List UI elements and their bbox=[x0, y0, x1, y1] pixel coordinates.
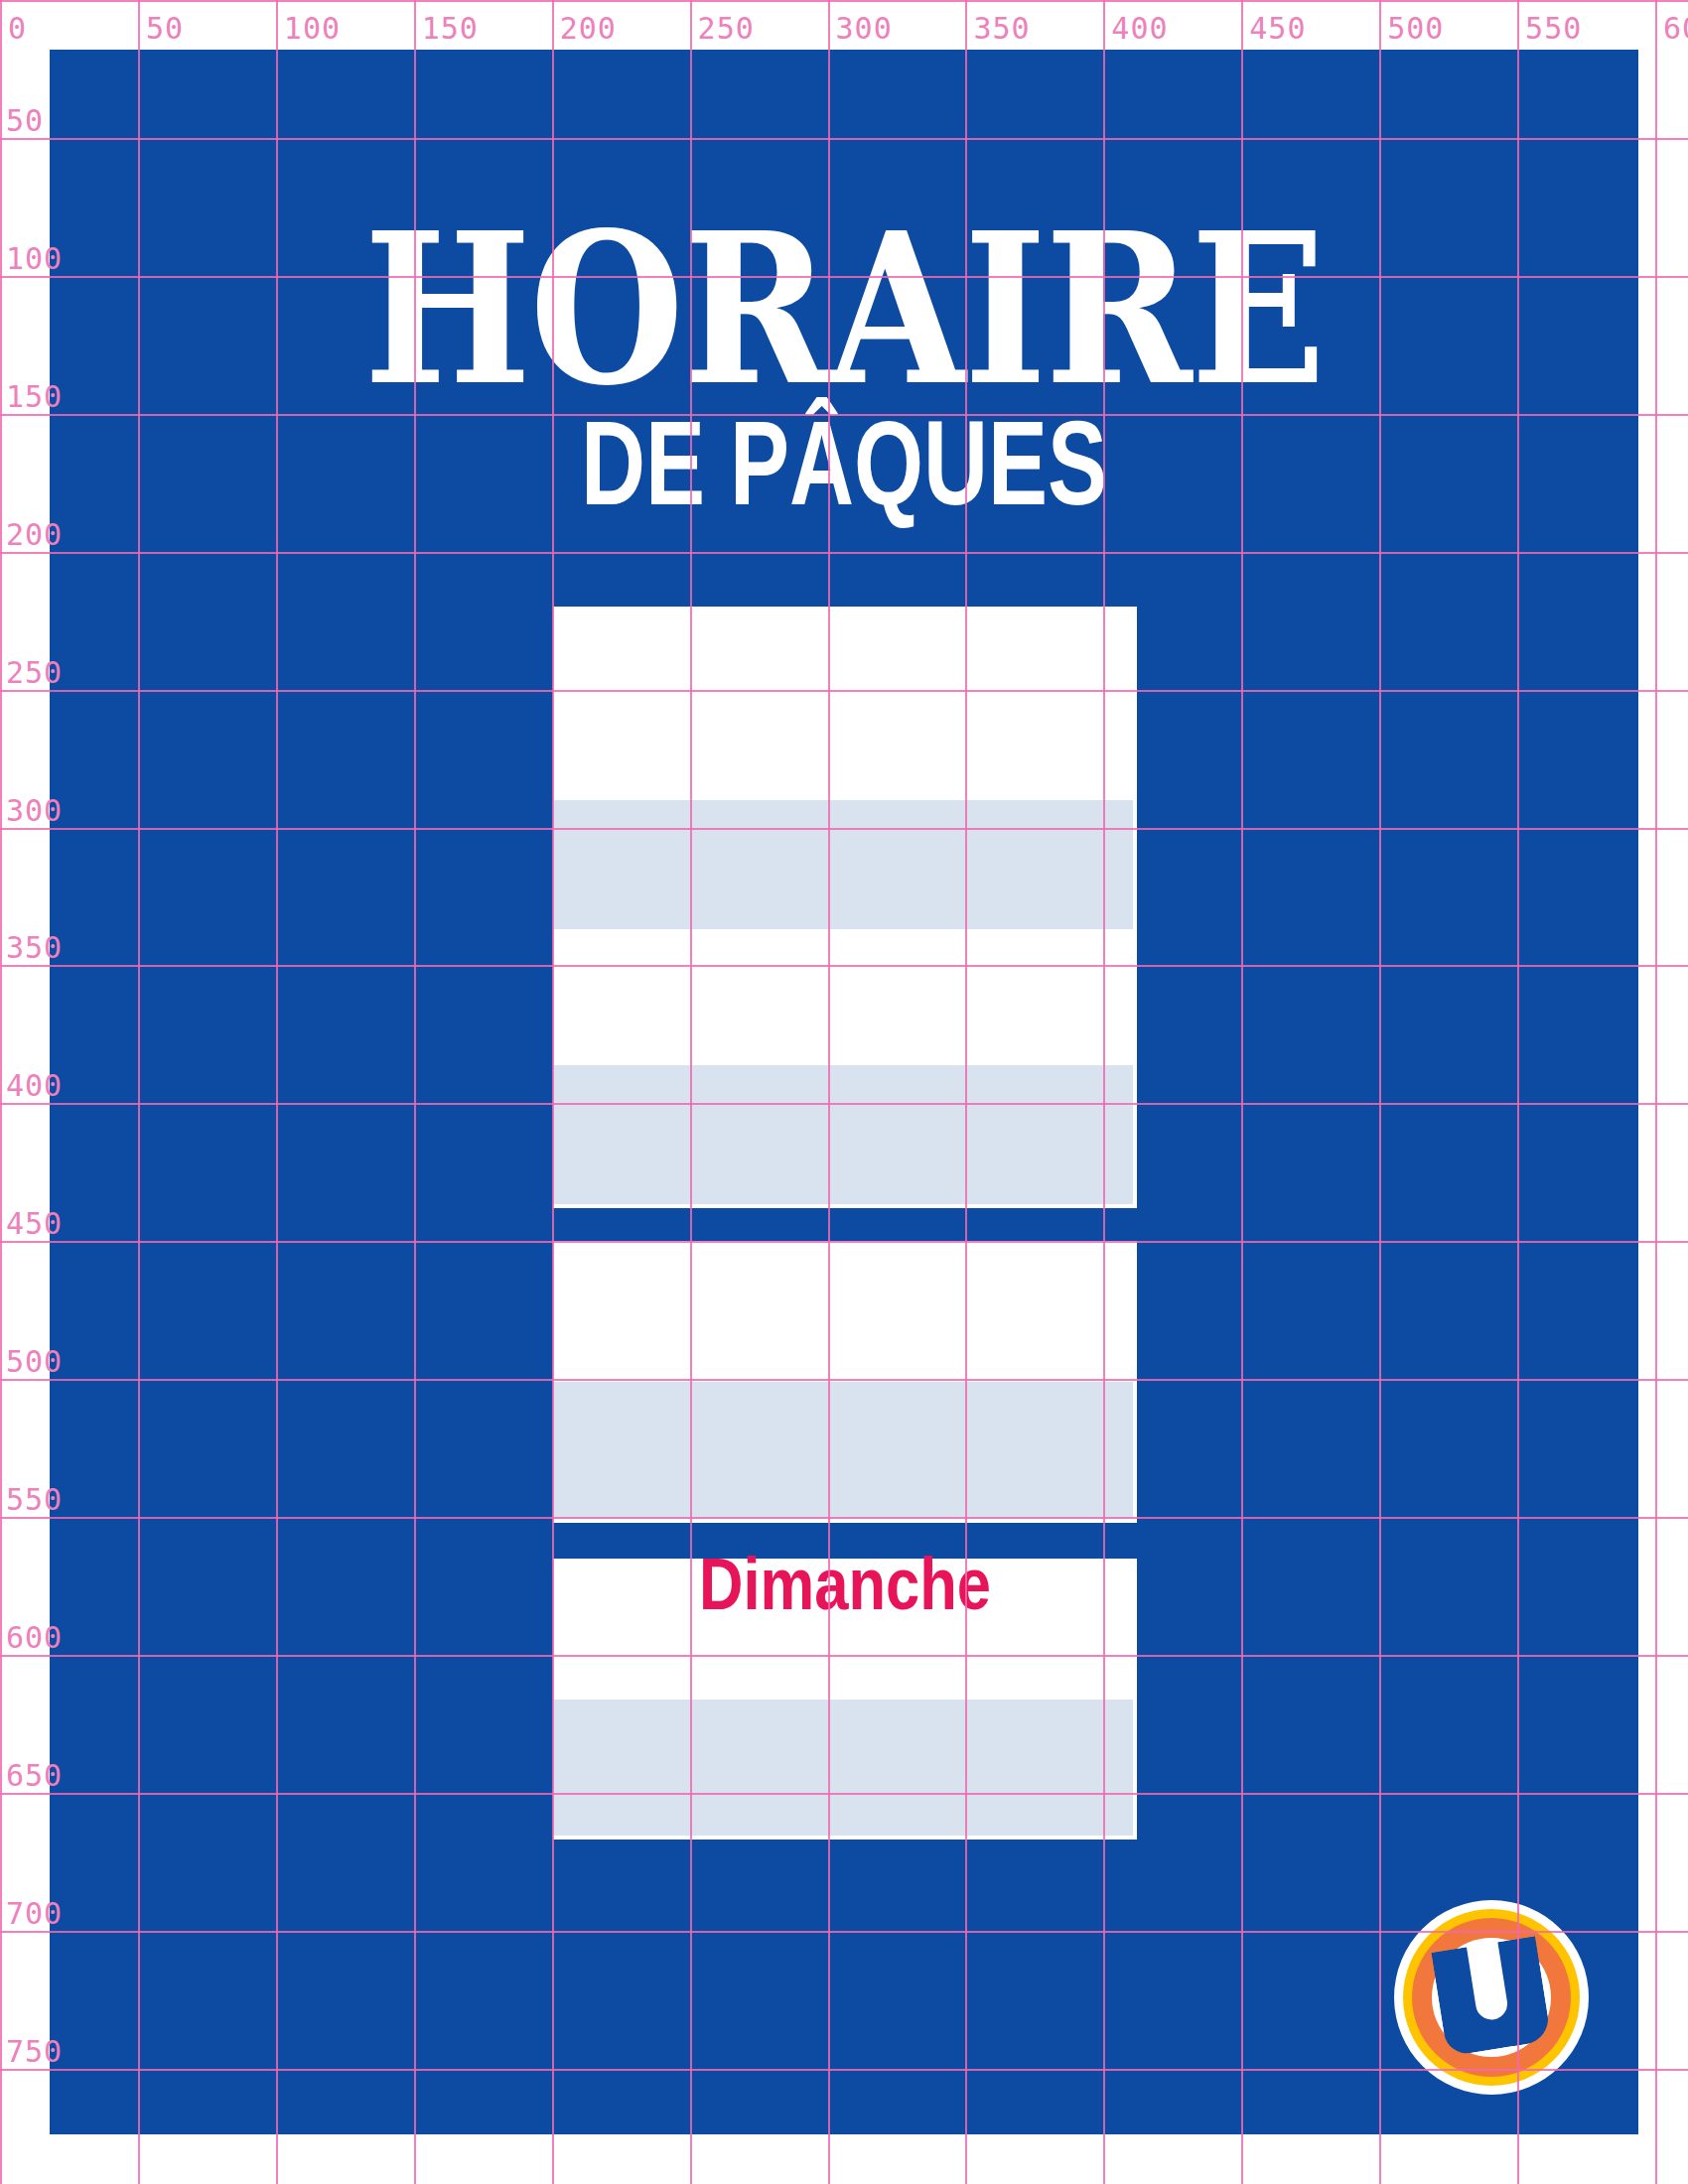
ruler-label-top-50: 50 bbox=[146, 14, 184, 44]
ruler-label-top-550: 550 bbox=[1525, 14, 1582, 44]
ruler-label-top-0: 0 bbox=[8, 14, 27, 44]
ruler-label-top-350: 350 bbox=[973, 14, 1030, 44]
poster-background: HORAIRE DE PÂQUES Dimanche bbox=[50, 50, 1638, 2134]
ruler-label-top-150: 150 bbox=[422, 14, 479, 44]
ruler-label-top-300: 300 bbox=[836, 14, 893, 44]
ruler-label-left-50: 50 bbox=[6, 106, 44, 136]
schedule-group-1 bbox=[553, 607, 1137, 941]
ruler-label-top-200: 200 bbox=[560, 14, 617, 44]
schedule-row-gray-3 bbox=[553, 1382, 1133, 1519]
poster-title: HORAIRE bbox=[169, 205, 1519, 414]
ruler-label-top-100: 100 bbox=[284, 14, 341, 44]
schedule-group-3 bbox=[553, 1241, 1137, 1523]
u-letter-icon bbox=[1431, 1936, 1551, 2056]
ruler-label-top-400: 400 bbox=[1111, 14, 1168, 44]
ruler-label-top-450: 450 bbox=[1249, 14, 1306, 44]
poster-subtitle: DE PÂQUES bbox=[248, 403, 1440, 522]
schedule-group-2 bbox=[553, 929, 1137, 1208]
ruler-label-top-600: 600 bbox=[1663, 14, 1688, 44]
ruler-label-top-250: 250 bbox=[698, 14, 755, 44]
ruler-label-top-500: 500 bbox=[1387, 14, 1444, 44]
schedule-row-gray-4 bbox=[553, 1700, 1133, 1836]
schedule-row-gray-2 bbox=[553, 1065, 1133, 1204]
schedule-row-gray-1 bbox=[553, 800, 1133, 937]
day-label-dimanche: Dimanche bbox=[606, 1547, 1084, 1621]
brand-logo bbox=[1394, 1900, 1589, 2095]
design-canvas: HORAIRE DE PÂQUES Dimanche bbox=[0, 0, 1688, 2184]
